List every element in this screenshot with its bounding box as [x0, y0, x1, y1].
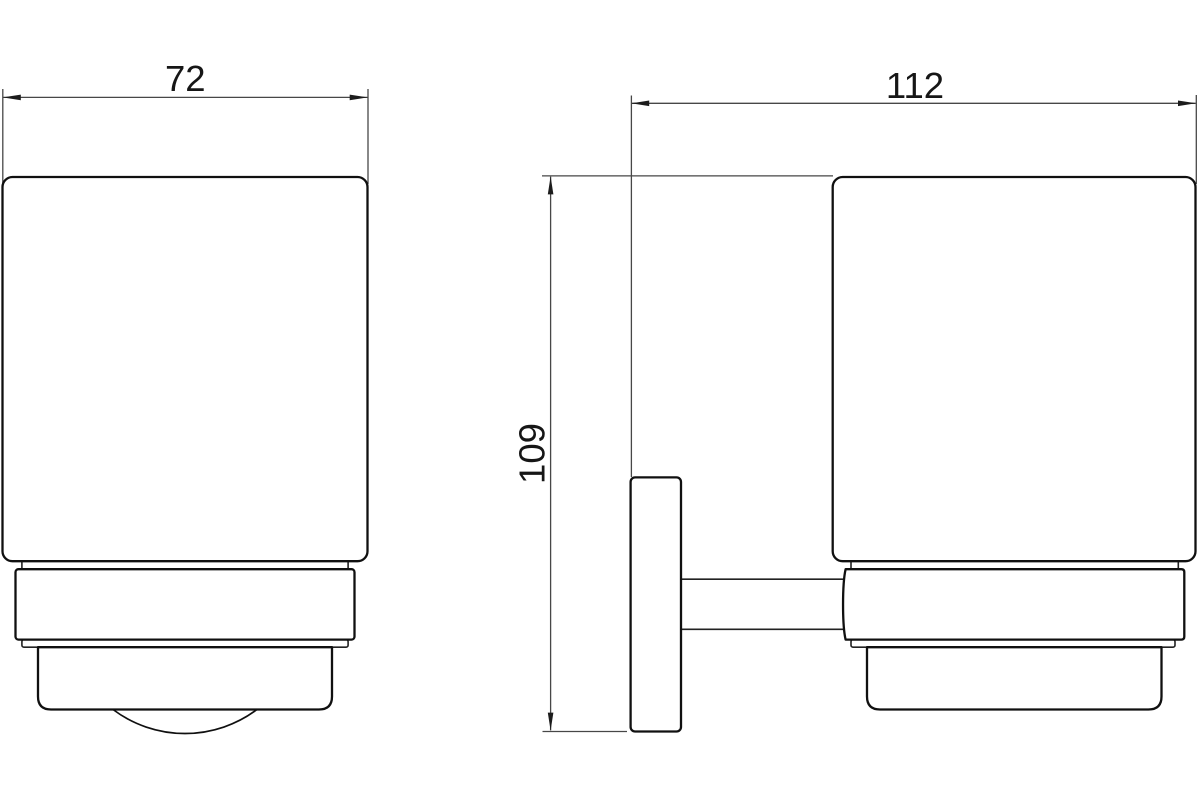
svg-text:109: 109 [512, 423, 553, 484]
svg-text:72: 72 [165, 58, 206, 99]
svg-text:112: 112 [886, 65, 944, 106]
